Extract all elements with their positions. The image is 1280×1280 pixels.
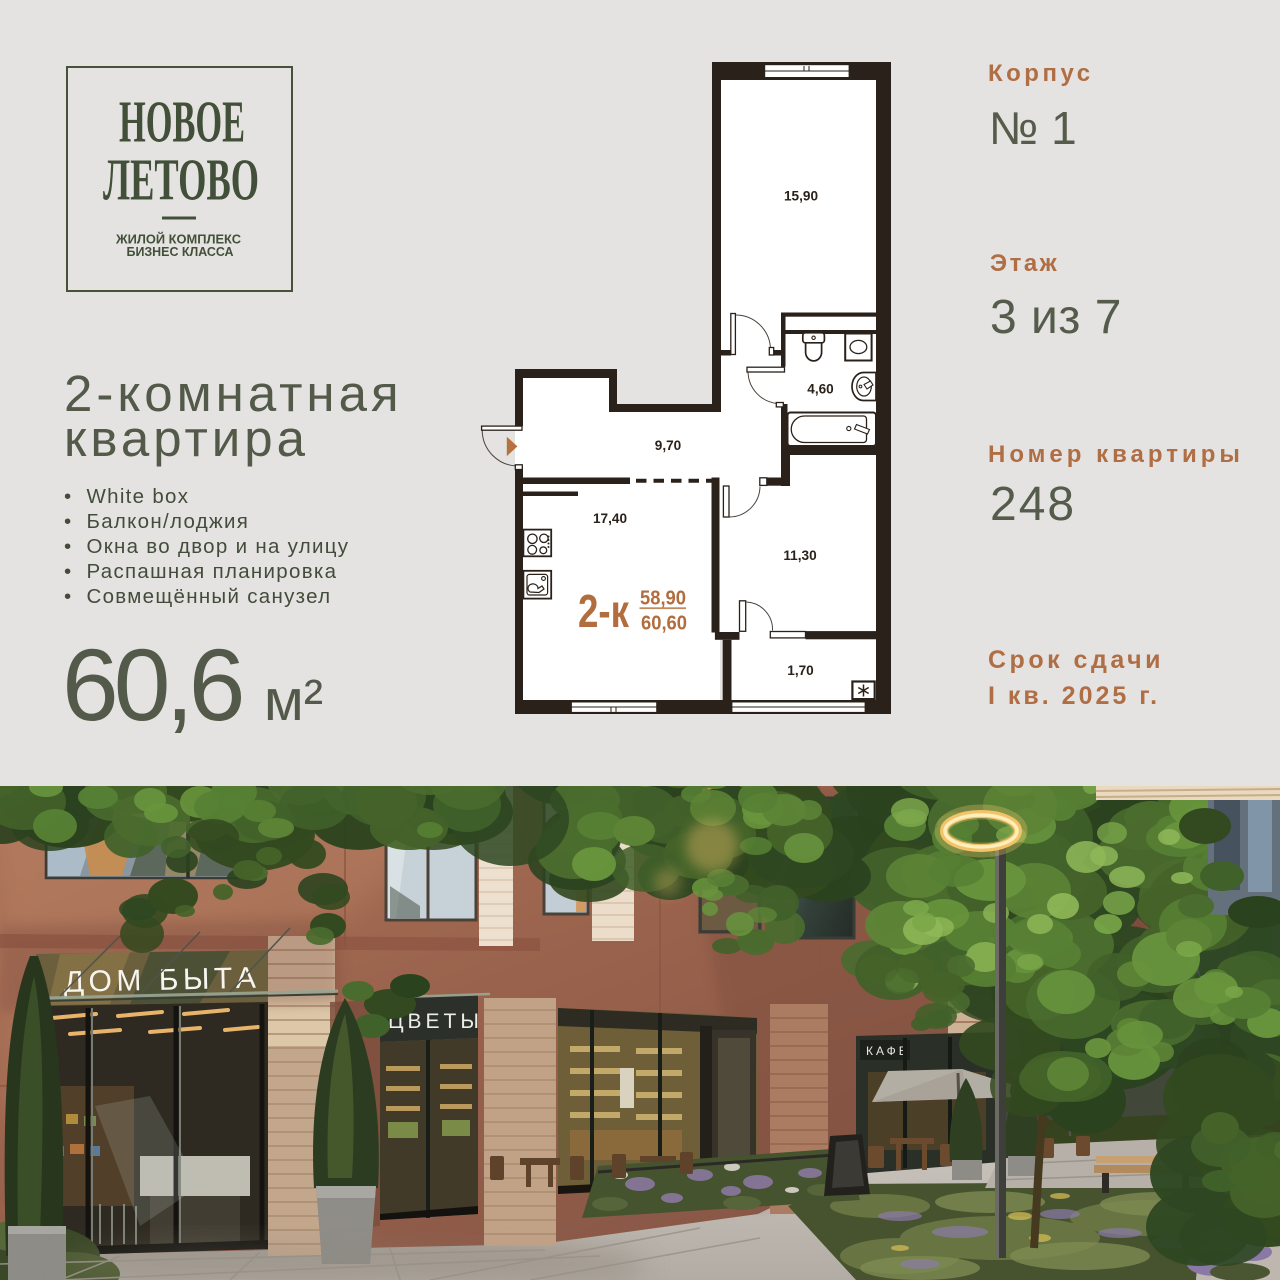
svg-text:15,90: 15,90	[784, 189, 818, 204]
svg-text:9,70: 9,70	[655, 438, 681, 453]
svg-text:4,60: 4,60	[807, 382, 833, 397]
svg-text:60,60: 60,60	[641, 612, 687, 635]
svg-text:2-к: 2-к	[578, 585, 630, 637]
svg-text:58,90: 58,90	[640, 587, 686, 610]
svg-text:11,30: 11,30	[783, 548, 816, 563]
svg-text:1,70: 1,70	[787, 663, 813, 678]
svg-text:17,40: 17,40	[593, 511, 627, 526]
